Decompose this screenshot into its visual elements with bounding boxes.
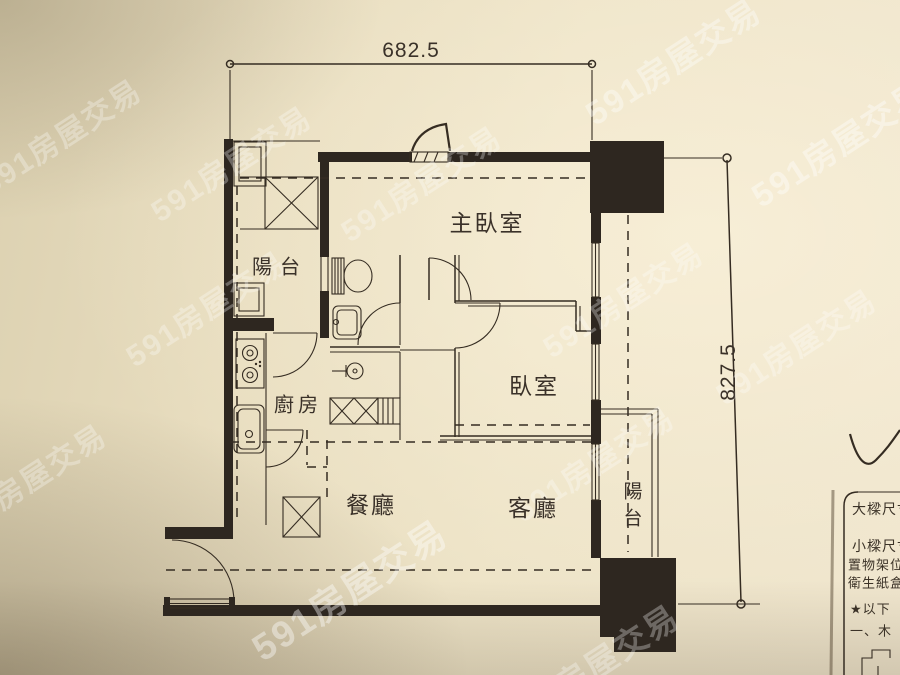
bedroom-door [455, 303, 500, 348]
stove [236, 339, 264, 388]
note-line-6: 一、木 [850, 621, 892, 640]
bathroom-door-arc [358, 303, 400, 345]
handwritten-curve [850, 430, 900, 464]
note-line-5: ★以下 [850, 599, 891, 618]
kitchen-sink [234, 405, 264, 453]
shaft-bottom [283, 497, 320, 537]
shower-symbol [332, 363, 363, 379]
kitchen-door-top [273, 333, 317, 377]
room-label-balcony-top: 陽台 [252, 251, 308, 280]
note-line-1: 大樑尺寸 [852, 499, 900, 519]
room-label-bedroom: 臥室 [509, 367, 559, 401]
bathroom [330, 255, 400, 379]
kitchen-door-bottom [266, 430, 303, 467]
dimension-height-label: 827.5 [717, 343, 741, 401]
window-divider [320, 252, 329, 296]
dimension-width-label: 682.5 [382, 39, 440, 63]
note-line-2: 小樑尺寸 [852, 536, 900, 556]
room-label-master-bedroom: 主臥室 [450, 204, 525, 238]
room-label-living: 客廳 [508, 489, 558, 523]
entry-door [164, 540, 235, 609]
floor-plan-photo: 591房屋交易 591房屋交易 591房屋交易 591房屋交易 591房屋交易 … [0, 0, 900, 675]
note-line-3: 置物架位 [848, 555, 900, 574]
paper-crease [831, 490, 833, 675]
note-line-4: 衛生紙盒 [848, 573, 900, 592]
shaft-top [240, 177, 318, 229]
bathroom-sink [333, 306, 361, 339]
hatched-cabinet [330, 398, 400, 424]
toilet [332, 258, 372, 294]
note-sketch-shape [862, 650, 890, 675]
room-label-kitchen: 廚房 [274, 389, 322, 418]
master-bedroom-door [429, 258, 471, 300]
room-label-dining: 餐廳 [346, 486, 396, 520]
column-top-right [590, 141, 664, 213]
room-label-balcony-bottom: 陽台 [618, 481, 645, 535]
